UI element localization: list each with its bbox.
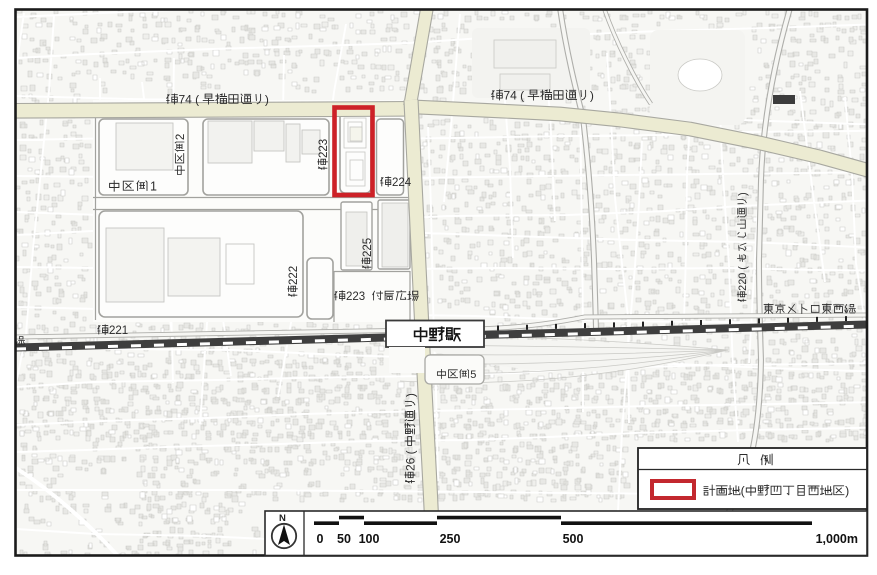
svg-text:): ) <box>265 93 269 107</box>
svg-text:): ) <box>590 89 594 103</box>
svg-text:0: 0 <box>317 532 324 546</box>
svg-text:): ) <box>404 393 418 397</box>
svg-text:223: 223 <box>318 139 330 158</box>
svg-text:50: 50 <box>337 532 351 546</box>
svg-text:250: 250 <box>440 532 461 546</box>
svg-text:26 (: 26 ( <box>404 450 418 471</box>
svg-text:2: 2 <box>175 134 187 140</box>
svg-text:N: N <box>279 513 286 524</box>
svg-text:74 (: 74 ( <box>504 89 525 103</box>
svg-text:500: 500 <box>563 532 584 546</box>
svg-text:225: 225 <box>362 238 374 257</box>
svg-text:100: 100 <box>359 532 380 546</box>
svg-text:1,000m: 1,000m <box>816 532 858 546</box>
svg-text:): ) <box>737 192 749 196</box>
svg-text:222: 222 <box>288 266 300 285</box>
svg-text:1: 1 <box>150 180 157 194</box>
svg-text:224: 224 <box>392 177 412 189</box>
svg-text:5: 5 <box>470 369 476 381</box>
svg-text:221: 221 <box>109 325 128 337</box>
svg-text:223: 223 <box>346 291 365 303</box>
svg-text:220 (: 220 ( <box>737 266 749 291</box>
svg-text:74 (: 74 ( <box>179 93 200 107</box>
svg-text:): ) <box>845 484 849 498</box>
